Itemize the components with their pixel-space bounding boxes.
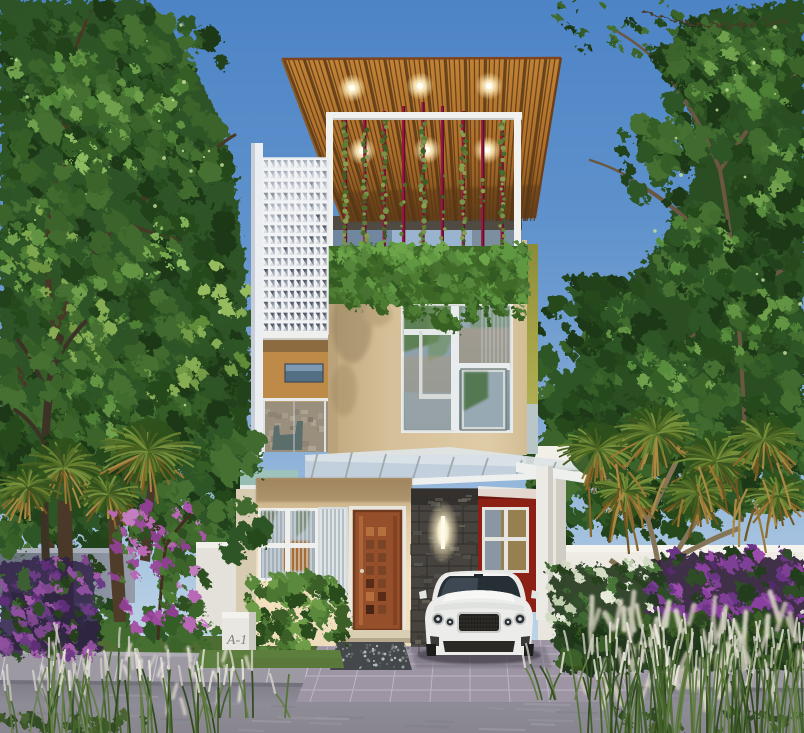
svg-text:A-1: A-1 (226, 633, 247, 648)
